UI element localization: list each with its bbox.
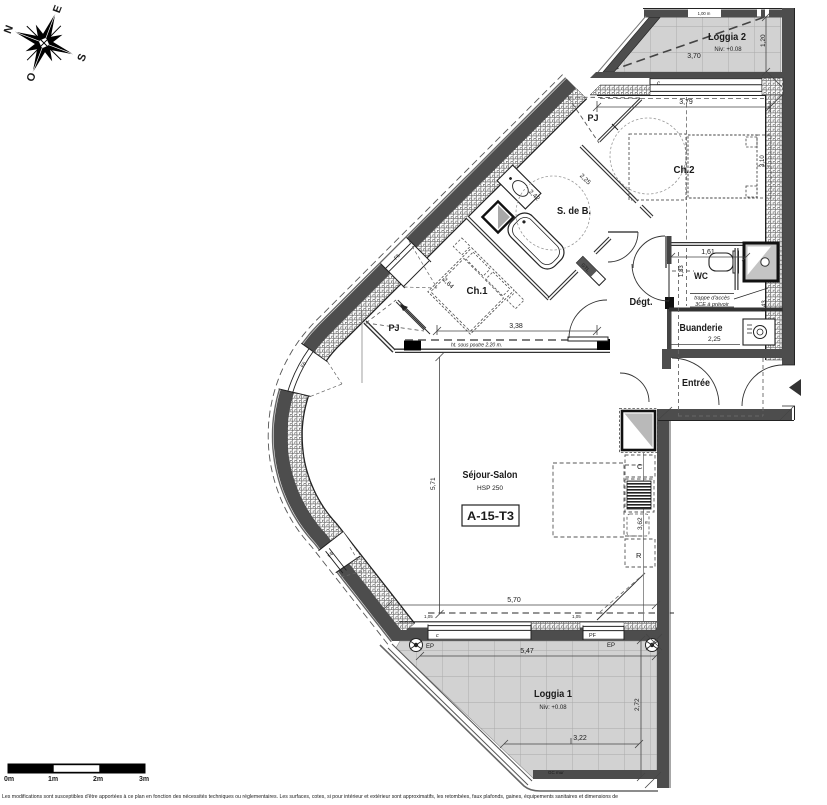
- svg-text:Niv: +0.08: Niv: +0.08: [714, 47, 742, 53]
- svg-text:EP: EP: [607, 643, 615, 649]
- svg-text:3,79: 3,79: [679, 99, 693, 106]
- svg-text:C: C: [637, 462, 643, 471]
- svg-text:Séjour-Salon: Séjour-Salon: [463, 470, 518, 481]
- svg-text:c: c: [436, 633, 439, 639]
- svg-text:1,00 m: 1,00 m: [698, 11, 711, 16]
- svg-text:1m: 1m: [48, 776, 58, 783]
- svg-text:PJ: PJ: [588, 113, 599, 124]
- svg-text:Ch.2: Ch.2: [674, 165, 695, 176]
- svg-text:e: e: [645, 520, 648, 526]
- svg-text:3m: 3m: [139, 776, 149, 783]
- svg-text:1,05: 1,05: [424, 614, 433, 619]
- svg-text:1,33: 1,33: [679, 265, 685, 277]
- svg-text:1,61: 1,61: [701, 249, 715, 256]
- svg-text:Entrée: Entrée: [682, 378, 710, 389]
- svg-text:PJ: PJ: [389, 323, 400, 334]
- svg-text:1,05: 1,05: [572, 614, 581, 619]
- svg-text:Loggia 1: Loggia 1: [534, 689, 572, 700]
- svg-text:3,70: 3,70: [687, 53, 701, 60]
- svg-text:R: R: [636, 551, 642, 560]
- svg-text:3,62: 3,62: [637, 517, 644, 530]
- svg-text:Loggia 2: Loggia 2: [708, 32, 746, 43]
- svg-text:2,72: 2,72: [634, 698, 641, 711]
- svg-text:WC: WC: [694, 271, 708, 282]
- svg-text:5,71: 5,71: [430, 477, 437, 490]
- svg-text:1,43: 1,43: [762, 300, 768, 312]
- svg-text:3,10: 3,10: [760, 155, 766, 167]
- svg-text:HSP 250: HSP 250: [477, 485, 503, 492]
- svg-text:Buanderie: Buanderie: [680, 323, 723, 334]
- svg-text:Dégt.: Dégt.: [630, 297, 653, 308]
- svg-text:c: c: [657, 81, 660, 87]
- svg-text:EP: EP: [426, 644, 434, 650]
- svg-text:2m: 2m: [93, 776, 103, 783]
- svg-text:5,47: 5,47: [520, 648, 534, 655]
- svg-text:A-15-T3: A-15-T3: [467, 511, 514, 523]
- svg-text:ht. sous poutre 2.20 m.: ht. sous poutre 2.20 m.: [451, 343, 502, 349]
- svg-text:1,20: 1,20: [760, 34, 767, 47]
- svg-text:GC mur: GC mur: [548, 770, 564, 775]
- svg-text:PF: PF: [589, 633, 597, 639]
- svg-text:2,25: 2,25: [708, 336, 721, 343]
- svg-text:Ch.1: Ch.1: [467, 286, 488, 297]
- svg-text:Niv: +0.08: Niv: +0.08: [539, 705, 567, 711]
- svg-text:0m: 0m: [4, 776, 14, 783]
- svg-text:Les modifications sont suscept: Les modifications sont susceptibles d'êt…: [2, 794, 618, 800]
- svg-text:3,38: 3,38: [509, 323, 523, 330]
- svg-text:S. de B.: S. de B.: [557, 206, 591, 217]
- svg-text:5,70: 5,70: [507, 597, 521, 604]
- svg-text:3,22: 3,22: [573, 735, 587, 742]
- svg-text:trappe d'accès: trappe d'accès: [694, 296, 730, 302]
